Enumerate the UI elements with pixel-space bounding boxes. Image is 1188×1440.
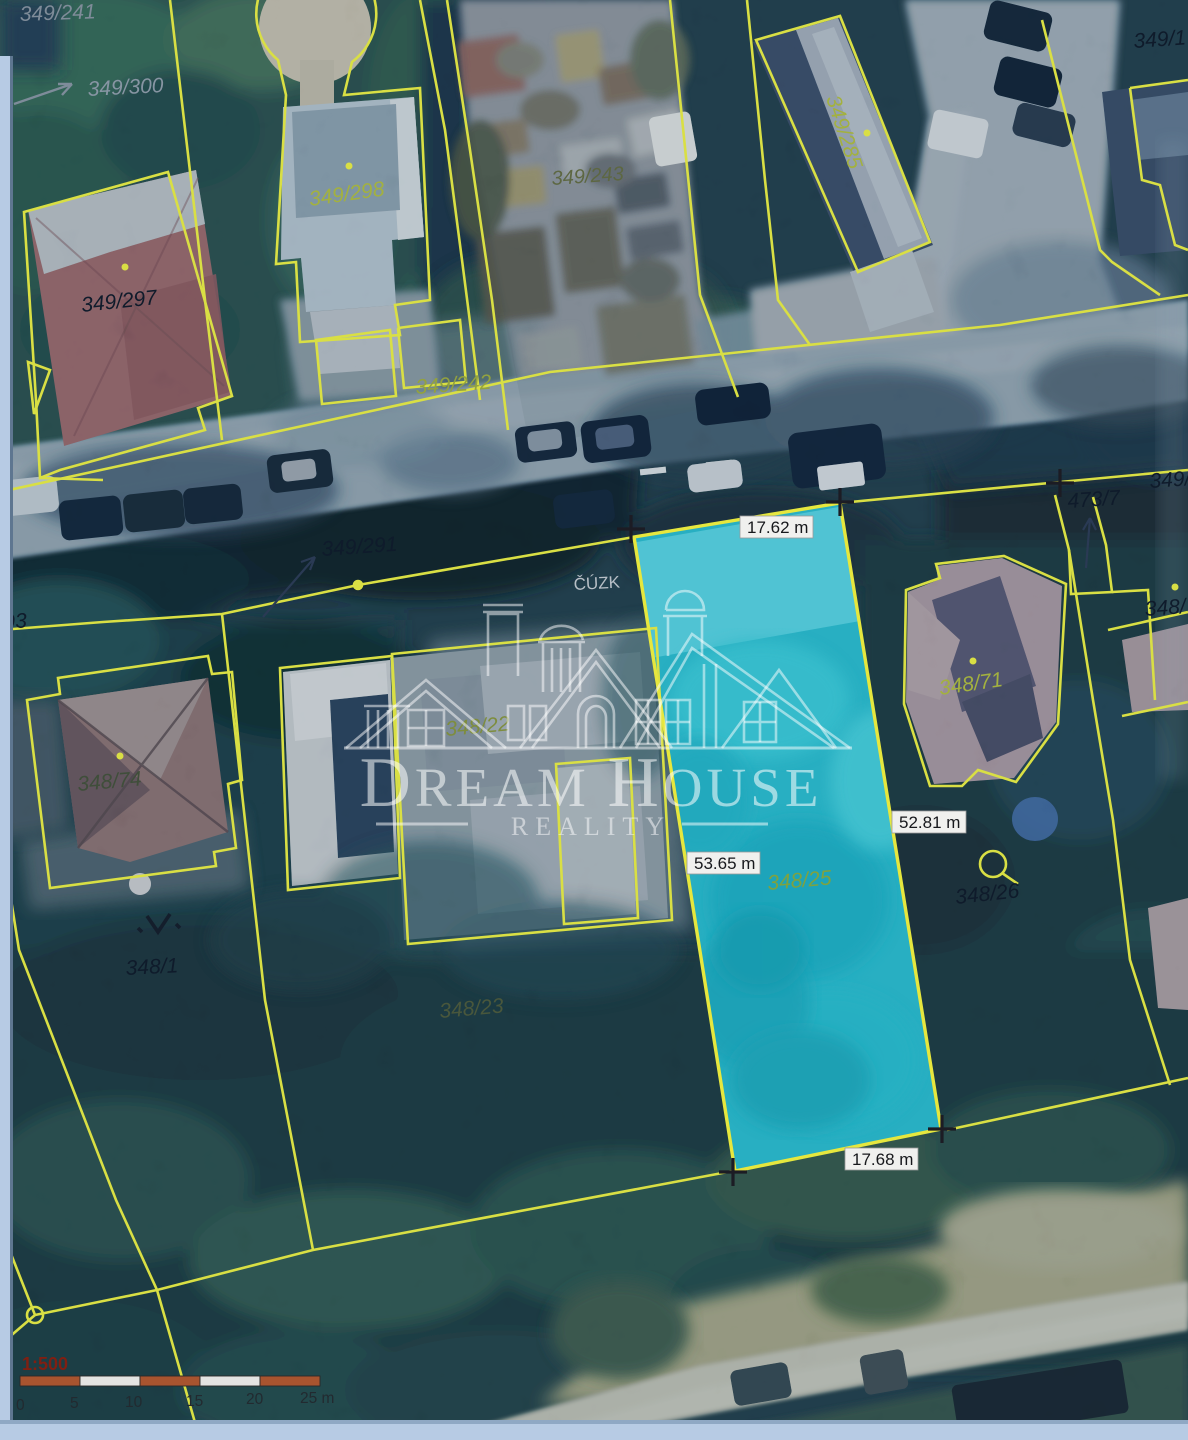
svg-text:53.65 m: 53.65 m xyxy=(694,854,755,873)
svg-text:REALITY: REALITY xyxy=(511,812,671,841)
svg-text:348/1: 348/1 xyxy=(125,954,179,980)
svg-text:1:500: 1:500 xyxy=(22,1354,68,1374)
svg-text:348/: 348/ xyxy=(1144,595,1188,621)
svg-text:0: 0 xyxy=(16,1397,25,1414)
svg-text:ČÚZK: ČÚZK xyxy=(573,573,621,594)
svg-text:5: 5 xyxy=(70,1395,79,1412)
svg-text:52.81 m: 52.81 m xyxy=(899,813,960,832)
svg-text:473/7: 473/7 xyxy=(1067,486,1122,513)
svg-text:349/241: 349/241 xyxy=(19,0,96,26)
svg-text:15: 15 xyxy=(186,1393,203,1410)
svg-text:349/: 349/ xyxy=(1149,467,1188,493)
svg-text:25 m: 25 m xyxy=(300,1390,334,1407)
svg-text:10: 10 xyxy=(125,1394,143,1411)
svg-text:349/1: 349/1 xyxy=(1133,26,1187,53)
svg-text:17.62 m: 17.62 m xyxy=(747,518,808,537)
svg-text:349/300: 349/300 xyxy=(87,74,164,101)
svg-text:17.68 m: 17.68 m xyxy=(852,1150,913,1169)
svg-text:20: 20 xyxy=(246,1391,264,1408)
